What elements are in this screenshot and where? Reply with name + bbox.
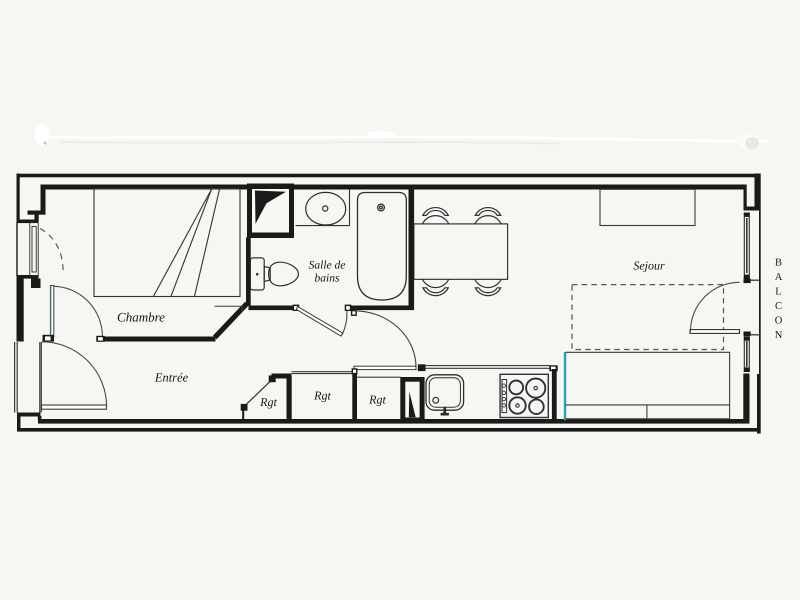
svg-text:Rgt: Rgt xyxy=(368,393,386,407)
svg-text:C: C xyxy=(775,301,782,312)
svg-text:B: B xyxy=(775,258,782,269)
svg-text:Rgt: Rgt xyxy=(259,395,277,409)
svg-text:Sejour: Sejour xyxy=(633,259,665,273)
svg-text:L: L xyxy=(775,287,781,298)
svg-text:O: O xyxy=(775,316,783,327)
svg-text:Rgt: Rgt xyxy=(313,389,331,403)
svg-text:N: N xyxy=(775,330,783,341)
svg-text:bains: bains xyxy=(315,273,340,285)
svg-text:Entrée: Entrée xyxy=(154,371,189,385)
svg-text:Salle de: Salle de xyxy=(309,260,346,272)
svg-text:A: A xyxy=(775,272,783,283)
svg-text:Chambre: Chambre xyxy=(117,310,165,325)
